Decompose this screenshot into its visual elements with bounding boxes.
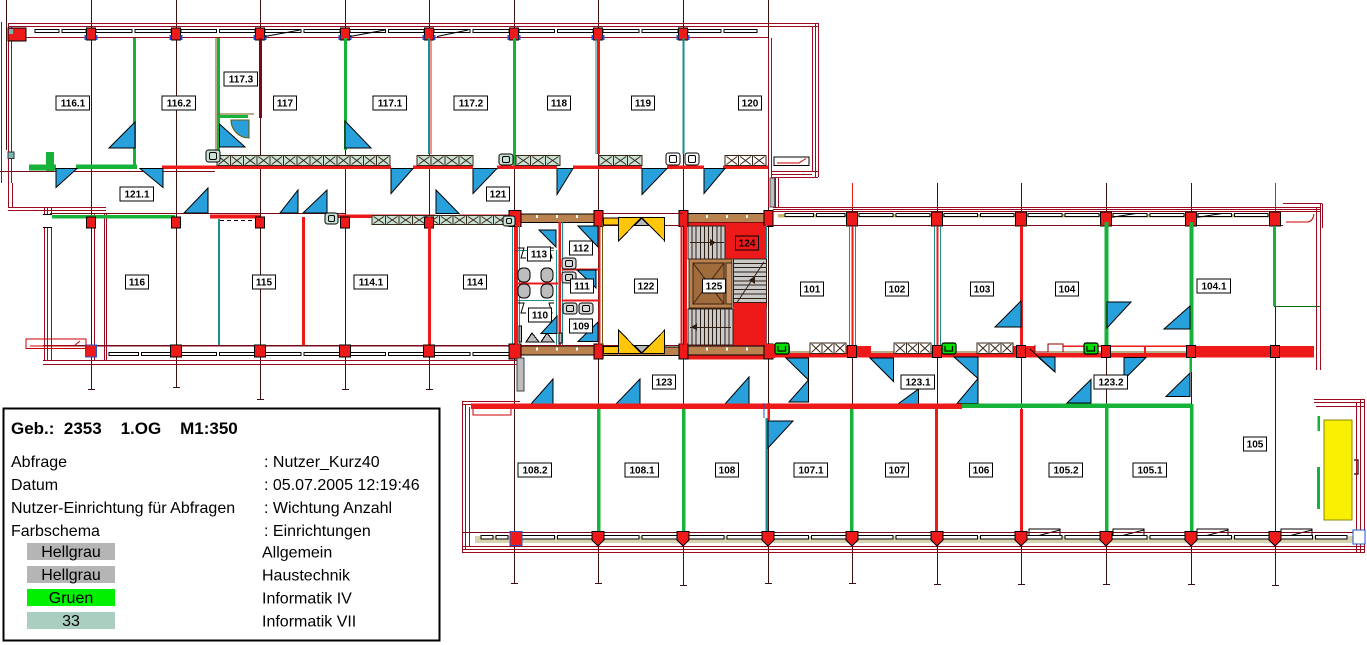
svg-text:107: 107: [889, 466, 906, 477]
svg-text:101: 101: [804, 285, 821, 296]
svg-text:Informatik IV: Informatik IV: [262, 591, 352, 608]
svg-text:105: 105: [1247, 440, 1264, 451]
svg-text:Geb.: 2353 1.OG M1:350: Geb.: 2353 1.OG M1:350: [11, 419, 238, 438]
svg-text:109: 109: [573, 322, 590, 333]
svg-text:124: 124: [739, 239, 756, 250]
svg-text:119: 119: [635, 99, 652, 110]
svg-text:111: 111: [574, 282, 590, 293]
svg-text:103: 103: [974, 285, 991, 296]
svg-text:110: 110: [532, 311, 549, 322]
svg-text:121.1: 121.1: [124, 190, 149, 201]
svg-text:105.1: 105.1: [1137, 466, 1162, 477]
svg-text:108.2: 108.2: [522, 466, 547, 477]
svg-text:120: 120: [742, 99, 759, 110]
svg-text:106: 106: [973, 466, 990, 477]
svg-text:117.2: 117.2: [459, 99, 484, 110]
svg-text:Allgemein: Allgemein: [262, 545, 332, 562]
svg-text:123.1: 123.1: [905, 378, 930, 389]
svg-text:116: 116: [129, 278, 146, 289]
svg-text:Gruen: Gruen: [49, 590, 93, 607]
svg-text:117.3: 117.3: [229, 75, 254, 86]
svg-text:121: 121: [490, 190, 507, 201]
svg-text:Hellgrau: Hellgrau: [41, 544, 101, 561]
svg-text:107.1: 107.1: [798, 466, 823, 477]
svg-text:125: 125: [706, 282, 723, 293]
svg-text:Nutzer-Einrichtung für Abfrage: Nutzer-Einrichtung für Abfragen: [11, 500, 235, 517]
svg-text:Haustechnik: Haustechnik: [262, 568, 351, 585]
svg-text:33: 33: [62, 613, 80, 630]
svg-text:116.2: 116.2: [167, 99, 192, 110]
svg-text:Hellgrau: Hellgrau: [41, 567, 101, 584]
svg-text:116.1: 116.1: [61, 99, 86, 110]
svg-text:113: 113: [531, 250, 548, 261]
svg-text:Informatik VII: Informatik VII: [262, 614, 356, 631]
svg-text:: Einrichtungen: : Einrichtungen: [264, 523, 371, 540]
svg-text:112: 112: [573, 244, 590, 255]
svg-text:114: 114: [467, 278, 484, 289]
svg-text:105.2: 105.2: [1053, 466, 1078, 477]
svg-text:117.1: 117.1: [378, 99, 403, 110]
svg-text:123.2: 123.2: [1098, 378, 1123, 389]
svg-text:117: 117: [277, 99, 294, 110]
svg-text:108: 108: [719, 466, 736, 477]
svg-text:122: 122: [638, 282, 655, 293]
svg-text:115: 115: [256, 278, 273, 289]
svg-text:108.1: 108.1: [629, 466, 654, 477]
svg-text:102: 102: [889, 285, 906, 296]
svg-text:: Wichtung Anzahl: : Wichtung Anzahl: [264, 500, 392, 517]
svg-text:123: 123: [656, 378, 673, 389]
svg-text:Datum: Datum: [11, 477, 58, 494]
svg-text:104: 104: [1059, 285, 1076, 296]
svg-text:: Nutzer_Kurz40: : Nutzer_Kurz40: [264, 454, 380, 471]
svg-text:104.1: 104.1: [1201, 282, 1226, 293]
svg-text:114.1: 114.1: [359, 278, 384, 289]
svg-text:: 05.07.2005 12:19:46: : 05.07.2005 12:19:46: [264, 477, 420, 494]
svg-text:118: 118: [551, 99, 568, 110]
svg-text:Farbschema: Farbschema: [11, 523, 100, 540]
svg-text:Abfrage: Abfrage: [11, 454, 67, 471]
